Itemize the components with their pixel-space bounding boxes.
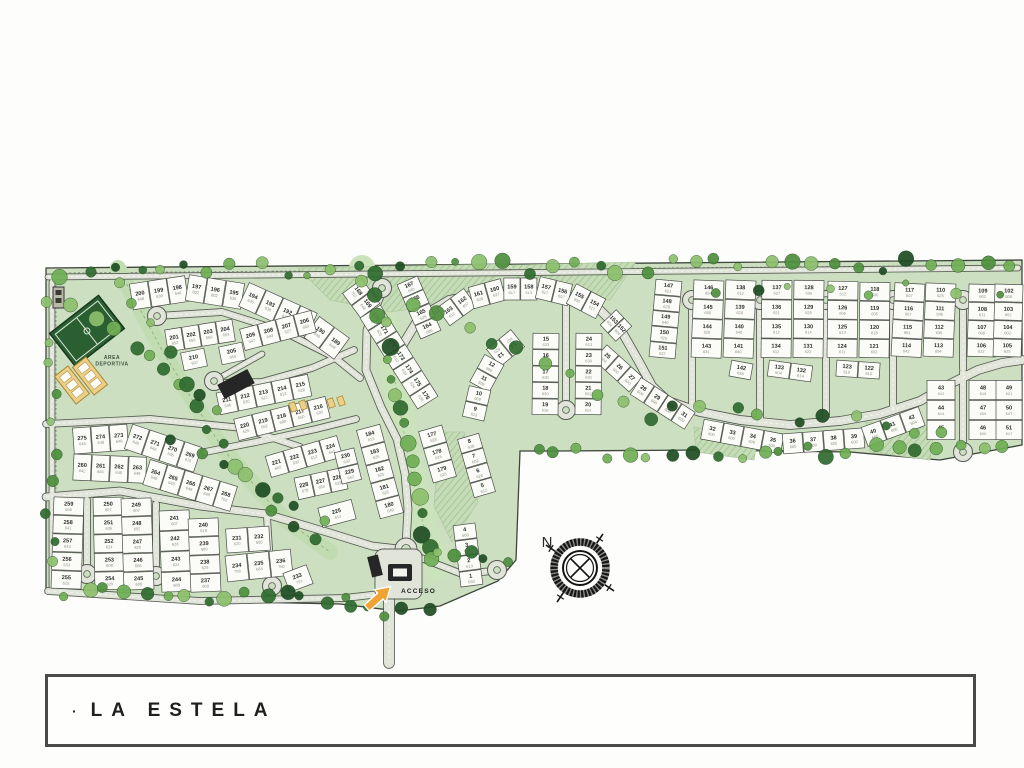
lot-126: 126606	[827, 300, 857, 319]
site-plan-page: 2006481996391986481976021966021956351946…	[0, 0, 1024, 768]
svg-text:612: 612	[938, 391, 945, 396]
lot-46: 46600	[969, 420, 997, 439]
lot-24: 24613	[576, 333, 602, 349]
lot-237: 237609	[190, 573, 221, 592]
svg-text:612: 612	[839, 291, 847, 296]
svg-text:648: 648	[134, 471, 142, 476]
svg-text:616: 616	[542, 408, 550, 413]
lot-34: 34600	[741, 427, 764, 450]
svg-text:DEPORTIVA: DEPORTIVA	[95, 362, 128, 368]
svg-text:602: 602	[1005, 312, 1013, 317]
svg-text:626: 626	[660, 335, 668, 341]
lot-109: 109602	[969, 284, 997, 302]
svg-text:608: 608	[1005, 294, 1013, 299]
svg-text:606: 606	[839, 311, 847, 316]
svg-text:620: 620	[234, 541, 242, 546]
lot-4: 4600	[453, 523, 477, 541]
svg-text:617: 617	[1006, 431, 1013, 436]
svg-text:624: 624	[173, 562, 181, 567]
svg-text:607: 607	[171, 521, 179, 526]
lot-138: 138612	[725, 280, 756, 300]
svg-text:612: 612	[978, 349, 986, 354]
lot-246: 246608	[123, 553, 154, 572]
lot-203: 203650	[199, 322, 219, 346]
lot-253: 253608	[94, 553, 124, 571]
lot-38: 38600	[823, 429, 844, 450]
svg-text:640: 640	[662, 319, 670, 325]
svg-text:648: 648	[115, 470, 123, 475]
plan-title: LA ESTELA	[91, 700, 277, 722]
lot-112: 112638	[924, 320, 955, 339]
lot-247: 247620	[122, 535, 153, 554]
lot-43: 43612	[927, 380, 955, 399]
svg-text:602: 602	[979, 294, 987, 299]
compass-rose	[523, 511, 637, 625]
svg-text:602: 602	[1004, 330, 1012, 335]
lot-132: 132614	[789, 363, 812, 382]
lot-128: 128606	[794, 280, 824, 299]
svg-text:613: 613	[585, 342, 593, 347]
lot-196: 196602	[204, 278, 226, 307]
lot-142: 142638	[729, 360, 753, 380]
svg-text:614: 614	[805, 330, 813, 335]
lot-107: 107608	[968, 320, 996, 338]
svg-text:ACCESO: ACCESO	[401, 588, 436, 595]
lot-22: 22630	[575, 366, 601, 382]
lot-106: 106612	[967, 339, 995, 357]
svg-text:626: 626	[172, 541, 180, 546]
lot-44: 44614	[927, 400, 955, 419]
lot-114: 114642	[891, 338, 922, 357]
lot-39: 39600	[844, 428, 865, 449]
lot-133: 133604	[767, 360, 790, 379]
svg-text:621: 621	[1006, 391, 1013, 396]
lot-240: 240618	[188, 518, 219, 537]
lot-51: 51617	[996, 420, 1022, 439]
lot-1: 1650	[459, 570, 483, 588]
svg-text:629: 629	[663, 304, 671, 310]
lot-32: 32600	[701, 419, 724, 442]
svg-text:600: 600	[980, 431, 987, 436]
lot-131: 131622	[793, 339, 823, 358]
svg-text:654: 654	[935, 348, 943, 353]
svg-text:648: 648	[79, 441, 87, 447]
lot-129: 129625	[793, 300, 823, 319]
lot-36: 36600	[782, 432, 803, 453]
svg-text:608: 608	[106, 563, 114, 568]
svg-text:600: 600	[830, 441, 838, 447]
svg-text:629: 629	[202, 565, 210, 570]
lot-234: 234708	[225, 554, 249, 582]
svg-text:621: 621	[773, 310, 781, 315]
svg-text:620: 620	[134, 545, 142, 550]
svg-text:611: 611	[839, 349, 846, 354]
lot-140: 140640	[724, 319, 755, 339]
lot-121: 121603	[859, 339, 889, 358]
lot-104: 104602	[994, 320, 1022, 338]
lot-20: 20612	[575, 399, 601, 415]
svg-text:641: 641	[65, 525, 73, 530]
svg-text:607: 607	[105, 507, 113, 512]
svg-text:643: 643	[64, 544, 72, 549]
lot-23: 23630	[576, 350, 602, 366]
svg-text:631: 631	[703, 349, 711, 354]
lot-116: 116667	[893, 301, 924, 320]
svg-text:AREA: AREA	[104, 355, 120, 361]
svg-text:636: 636	[65, 507, 73, 512]
svg-text:609: 609	[173, 582, 181, 587]
svg-text:630: 630	[585, 358, 593, 363]
svg-text:614: 614	[938, 411, 945, 416]
lot-115: 115661	[892, 320, 923, 339]
lot-147: 147621	[655, 279, 682, 296]
lot-150: 150626	[650, 326, 677, 343]
svg-text:620: 620	[736, 310, 744, 315]
site-plan-map: 2006481996391986481976021966021956351946…	[0, 0, 1024, 768]
svg-text:661: 661	[904, 330, 912, 335]
svg-text:612: 612	[773, 330, 781, 335]
svg-text:620: 620	[106, 581, 114, 586]
lot-159: 159617	[504, 278, 520, 300]
lot-238: 238629	[190, 555, 221, 574]
lot-47: 47609	[969, 400, 997, 419]
svg-text:612: 612	[737, 290, 745, 295]
lot-33: 33600	[721, 423, 744, 446]
lot-130: 130614	[793, 319, 823, 338]
svg-text:609: 609	[201, 546, 209, 551]
lot-125: 125613	[827, 320, 857, 339]
lot-231: 231620	[226, 528, 249, 553]
lot-258: 258641	[53, 515, 84, 534]
lot-259: 259636	[53, 497, 84, 516]
lot-122: 122610	[858, 362, 880, 379]
svg-text:618: 618	[871, 330, 879, 335]
svg-text:621: 621	[664, 288, 672, 294]
lot-244: 244609	[161, 571, 192, 592]
lot-120: 120618	[859, 320, 889, 339]
svg-text:N: N	[542, 534, 553, 551]
lot-135: 135612	[761, 319, 791, 338]
svg-text:642: 642	[79, 468, 87, 473]
svg-text:610: 610	[865, 371, 873, 376]
title-bullet-icon: ·	[72, 703, 77, 719]
svg-text:607: 607	[1006, 411, 1013, 416]
lot-252: 252624	[94, 534, 124, 552]
lot-143: 143631	[691, 338, 722, 358]
svg-text:633: 633	[63, 562, 71, 567]
lot-18: 18630	[532, 382, 558, 398]
lot-148: 148629	[653, 295, 680, 312]
svg-text:606: 606	[805, 291, 813, 296]
svg-text:646: 646	[97, 469, 105, 474]
svg-text:630: 630	[585, 375, 593, 380]
lot-239: 239609	[189, 536, 220, 555]
lot-134: 134612	[761, 339, 791, 358]
lot-19: 19616	[532, 399, 558, 415]
lot-204: 204663	[216, 319, 236, 343]
svg-text:638: 638	[936, 330, 944, 335]
lot-108: 108611	[968, 302, 996, 320]
lot-111: 111645	[925, 301, 956, 320]
lot-136: 136621	[761, 300, 791, 319]
lot-119: 119605	[859, 301, 889, 320]
lot-158: 158613	[521, 278, 537, 300]
svg-text:612: 612	[585, 408, 593, 413]
svg-text:615: 615	[980, 391, 987, 396]
lot-248: 248602	[122, 516, 153, 535]
svg-text:630: 630	[542, 391, 550, 396]
svg-text:640: 640	[735, 349, 743, 354]
lot-144: 144628	[692, 319, 723, 339]
lot-251: 251636	[93, 516, 123, 534]
lot-149: 149640	[652, 310, 679, 327]
lot-15: 15623	[533, 333, 559, 349]
lot-249: 249607	[121, 498, 152, 517]
svg-text:628: 628	[704, 329, 712, 334]
lot-262: 262648	[110, 456, 129, 483]
signage	[53, 287, 64, 308]
lot-235: 235684	[247, 551, 271, 579]
lot-151: 151637	[649, 342, 676, 359]
lot-145: 145660	[693, 299, 724, 319]
lot-263: 263648	[128, 457, 147, 484]
lot-118: 118606	[860, 282, 890, 301]
lot-141: 141640	[723, 338, 754, 358]
svg-text:603: 603	[871, 349, 879, 354]
lot-199: 199639	[148, 278, 170, 306]
svg-text:600: 600	[851, 439, 859, 445]
svg-text:613: 613	[525, 290, 532, 295]
svg-text:609: 609	[202, 583, 210, 588]
lot-250: 250607	[93, 497, 123, 515]
svg-text:613: 613	[839, 330, 847, 335]
lot-261: 261646	[91, 455, 110, 482]
svg-text:636: 636	[105, 526, 113, 531]
svg-text:607: 607	[906, 293, 914, 298]
lot-260: 260642	[73, 454, 92, 481]
svg-text:608: 608	[135, 563, 143, 568]
lot-202: 202650	[182, 325, 202, 349]
svg-text:625: 625	[937, 293, 945, 298]
lot-113: 113654	[923, 338, 954, 357]
svg-text:667: 667	[905, 311, 913, 316]
svg-text:623: 623	[542, 342, 550, 347]
svg-text:627: 627	[773, 291, 781, 296]
svg-text:608: 608	[978, 330, 986, 335]
svg-text:630: 630	[542, 375, 550, 380]
lot-48: 48615	[969, 380, 997, 399]
svg-text:645: 645	[936, 311, 944, 316]
lot-275: 275648	[73, 427, 92, 454]
svg-text:618: 618	[200, 528, 208, 533]
svg-text:622: 622	[805, 349, 813, 354]
north-label: N	[542, 534, 553, 551]
acceso-label: ACCESO	[401, 588, 436, 595]
lot-117: 117607	[894, 283, 925, 302]
svg-text:605: 605	[871, 311, 879, 316]
svg-text:665: 665	[256, 539, 264, 544]
lot-123: 123610	[836, 360, 858, 377]
svg-text:611: 611	[979, 312, 986, 317]
lot-197: 197602	[185, 275, 207, 304]
svg-text:648: 648	[116, 438, 124, 444]
lot-241: 241607	[159, 510, 190, 531]
svg-text:625: 625	[63, 580, 71, 585]
svg-text:600: 600	[790, 444, 798, 450]
lot-274: 274648	[91, 426, 110, 453]
svg-text:602: 602	[134, 526, 142, 531]
svg-text:610: 610	[843, 369, 851, 374]
svg-text:660: 660	[704, 310, 712, 315]
svg-text:602: 602	[585, 391, 593, 396]
lot-49: 49621	[996, 380, 1022, 399]
svg-text:640: 640	[736, 329, 744, 334]
lot-50: 50607	[996, 400, 1022, 419]
svg-text:609: 609	[980, 411, 987, 416]
lot-103: 103602	[994, 302, 1022, 320]
lot-232: 232665	[248, 526, 271, 551]
svg-text:642: 642	[903, 348, 911, 353]
lot-139: 139620	[725, 299, 756, 319]
plan-title-bar: · LA ESTELA	[45, 674, 976, 747]
svg-text:612: 612	[773, 349, 781, 354]
svg-text:624: 624	[106, 544, 114, 549]
lot-242: 242626	[160, 530, 191, 551]
lot-243: 243624	[161, 551, 192, 572]
svg-text:625: 625	[1004, 349, 1012, 354]
svg-text:625: 625	[805, 310, 813, 315]
svg-text:637: 637	[659, 351, 667, 357]
svg-text:608: 608	[135, 581, 143, 586]
lot-255: 255625	[51, 571, 82, 590]
svg-text:617: 617	[509, 290, 516, 295]
svg-text:607: 607	[133, 508, 141, 513]
lot-105: 105625	[993, 339, 1021, 357]
lot-124: 124611	[827, 339, 857, 358]
svg-text:648: 648	[97, 440, 105, 446]
